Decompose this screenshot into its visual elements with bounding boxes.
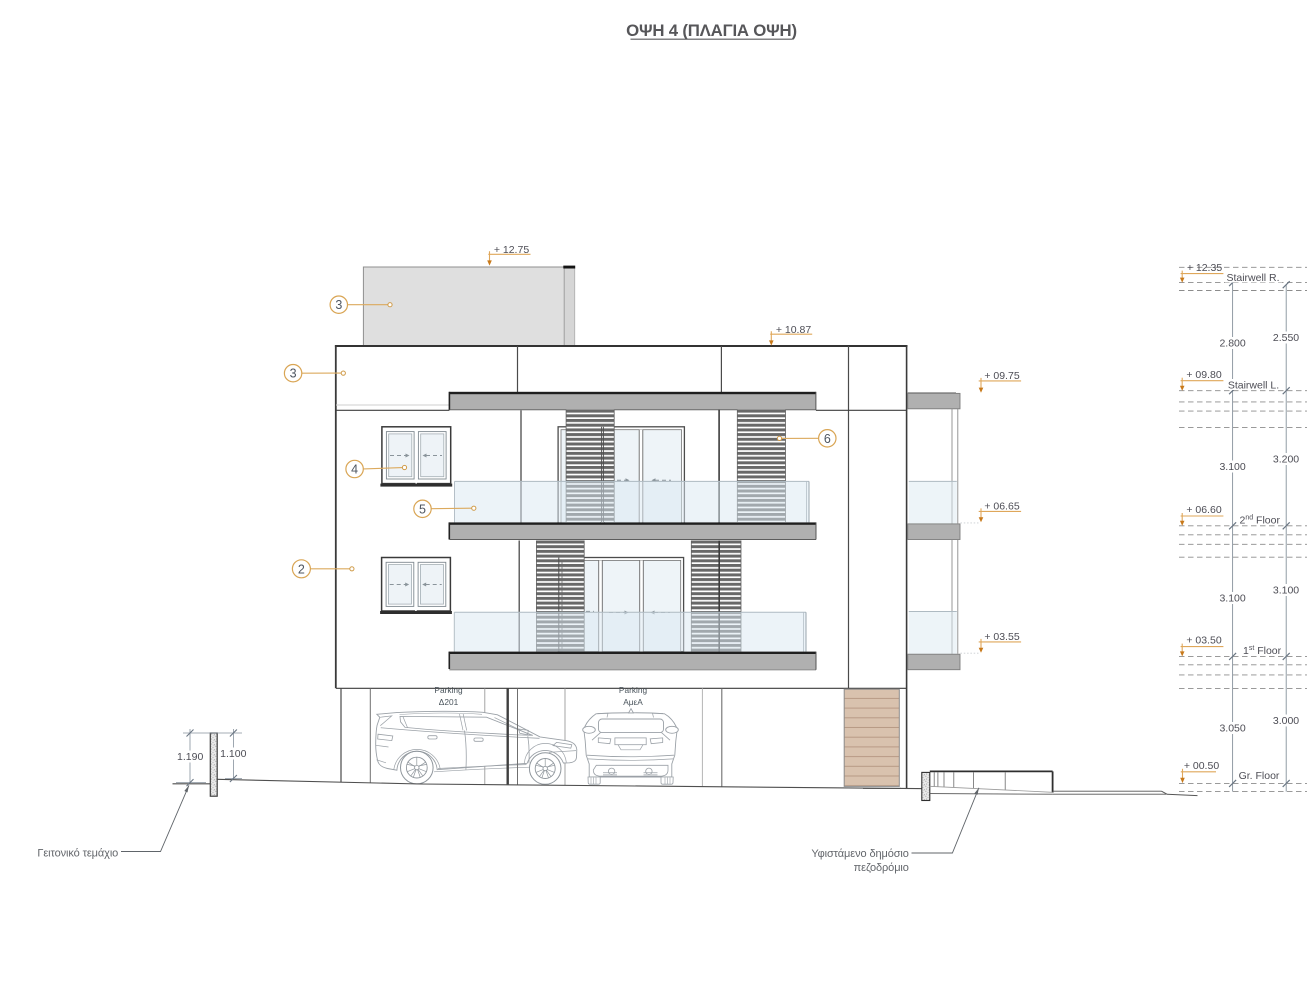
svg-text:3.200: 3.200 [1273, 454, 1299, 466]
svg-text:1.190: 1.190 [177, 751, 203, 763]
svg-text:2.800: 2.800 [1219, 338, 1245, 350]
svg-text:4: 4 [351, 463, 358, 477]
svg-text:Stairwell L.: Stairwell L. [1228, 379, 1279, 391]
svg-text:3.000: 3.000 [1273, 715, 1299, 727]
svg-text:2.550: 2.550 [1273, 332, 1299, 344]
svg-text:+ 09.80: + 09.80 [1186, 369, 1221, 381]
svg-text:+ 06.60: + 06.60 [1186, 504, 1221, 516]
svg-text:πεζοδρόμιο: πεζοδρόμιο [854, 862, 909, 874]
svg-text:3.100: 3.100 [1273, 585, 1299, 597]
svg-text:Γειτονικό τεμάχιο: Γειτονικό τεμάχιο [37, 848, 118, 860]
svg-text:+ 03.55: + 03.55 [984, 631, 1019, 643]
svg-text:Parking: Parking [434, 685, 463, 695]
svg-text:6: 6 [824, 432, 831, 446]
svg-text:3: 3 [335, 298, 342, 312]
svg-text:ΟΨΗ 4 (ΠΛΑΓΙΑ ΟΨΗ): ΟΨΗ 4 (ΠΛΑΓΙΑ ΟΨΗ) [626, 21, 797, 40]
svg-text:2: 2 [298, 562, 305, 576]
svg-text:Δ201: Δ201 [439, 697, 459, 707]
svg-text:Υφιστάμενο δημόσιο: Υφιστάμενο δημόσιο [811, 848, 908, 860]
svg-text:Gr. Floor: Gr. Floor [1239, 770, 1280, 782]
svg-text:+ 09.75: + 09.75 [984, 370, 1019, 382]
svg-text:Stairwell R.: Stairwell R. [1226, 272, 1279, 284]
svg-text:3.100: 3.100 [1219, 461, 1245, 473]
svg-text:+ 12.35: + 12.35 [1187, 262, 1222, 274]
svg-text:1.100: 1.100 [220, 748, 246, 760]
svg-text:3.050: 3.050 [1219, 723, 1245, 735]
svg-text:+ 06.65: + 06.65 [984, 501, 1019, 513]
svg-text:Parking: Parking [619, 685, 648, 695]
svg-text:3: 3 [290, 367, 297, 381]
svg-text:+ 00.50: + 00.50 [1184, 760, 1219, 772]
svg-text:ΑμεΑ: ΑμεΑ [623, 697, 643, 707]
svg-text:1st Floor: 1st Floor [1243, 645, 1282, 657]
svg-text:5: 5 [419, 502, 426, 516]
svg-text:3.100: 3.100 [1219, 593, 1245, 605]
svg-text:+ 03.50: + 03.50 [1186, 635, 1221, 647]
